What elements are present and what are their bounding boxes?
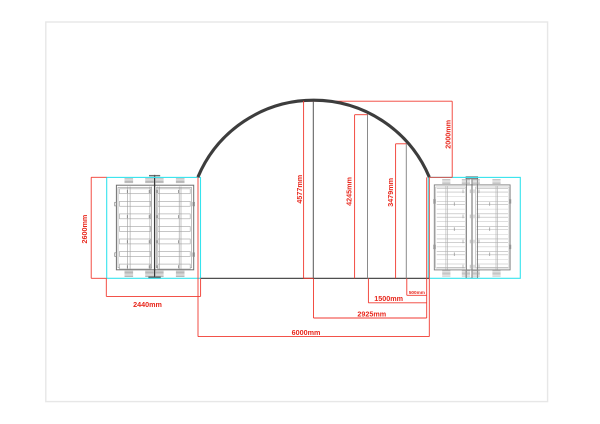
svg-text:2600mm: 2600mm [80,215,89,244]
svg-text:4577mm: 4577mm [295,175,304,204]
svg-text:500mm: 500mm [409,290,425,295]
svg-text:3479mm: 3479mm [386,178,395,207]
svg-text:4245mm: 4245mm [345,177,354,206]
svg-text:2440mm: 2440mm [133,300,162,309]
svg-text:2925mm: 2925mm [357,309,386,318]
svg-text:6000mm: 6000mm [292,328,321,337]
svg-text:2000mm: 2000mm [443,120,452,149]
svg-text:1500mm: 1500mm [374,294,403,303]
